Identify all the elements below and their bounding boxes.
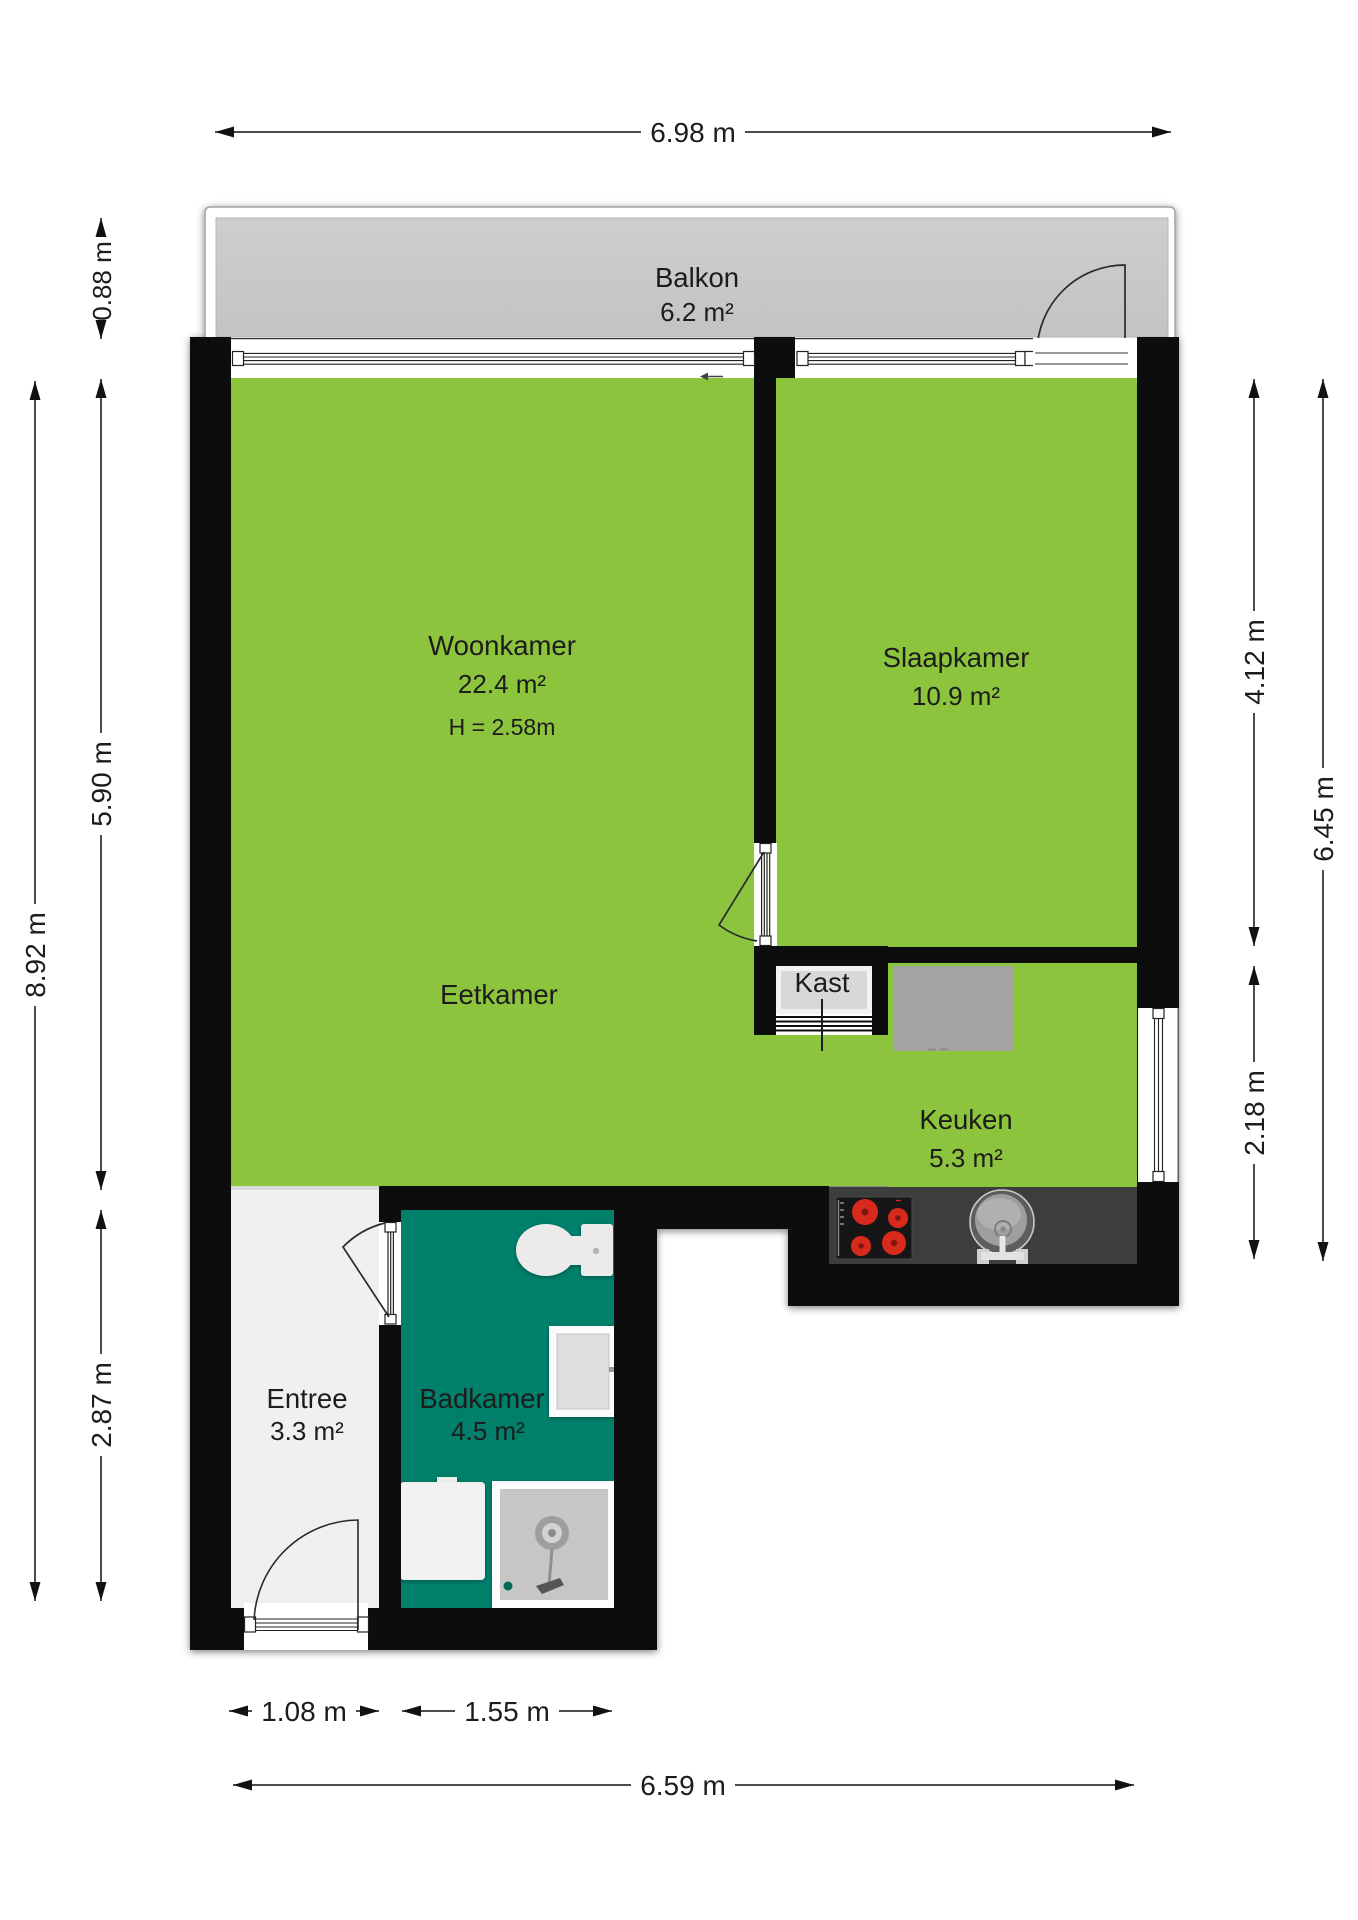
svg-text:2.87 m: 2.87 m <box>86 1362 117 1448</box>
svg-text:Balkon: Balkon <box>655 262 739 293</box>
svg-text:1.55 m: 1.55 m <box>464 1696 550 1727</box>
svg-text:6.59 m: 6.59 m <box>640 1770 726 1801</box>
svg-text:Slaapkamer: Slaapkamer <box>883 642 1030 673</box>
svg-text:3.3 m²: 3.3 m² <box>270 1416 344 1446</box>
svg-text:5.90 m: 5.90 m <box>86 741 117 827</box>
svg-text:Keuken: Keuken <box>919 1104 1012 1135</box>
svg-text:6.45 m: 6.45 m <box>1308 776 1339 862</box>
svg-text:6.2 m²: 6.2 m² <box>660 297 734 327</box>
svg-text:0.88 m: 0.88 m <box>87 241 117 321</box>
svg-text:Woonkamer: Woonkamer <box>428 630 576 661</box>
svg-text:1.08 m: 1.08 m <box>261 1696 347 1727</box>
svg-text:Kast: Kast <box>794 967 849 998</box>
svg-text:4.5 m²: 4.5 m² <box>451 1416 525 1446</box>
svg-text:5.3 m²: 5.3 m² <box>929 1143 1003 1173</box>
svg-text:8.92 m: 8.92 m <box>20 912 51 998</box>
svg-text:2.18 m: 2.18 m <box>1239 1070 1270 1156</box>
svg-text:H = 2.58m: H = 2.58m <box>449 714 556 740</box>
svg-text:Eetkamer: Eetkamer <box>440 979 558 1010</box>
svg-text:10.9 m²: 10.9 m² <box>912 681 1000 711</box>
svg-text:4.12 m: 4.12 m <box>1239 619 1270 705</box>
svg-text:22.4 m²: 22.4 m² <box>458 669 546 699</box>
svg-text:Entree: Entree <box>266 1383 347 1414</box>
svg-text:Badkamer: Badkamer <box>419 1383 544 1414</box>
svg-text:6.98 m: 6.98 m <box>650 117 736 148</box>
